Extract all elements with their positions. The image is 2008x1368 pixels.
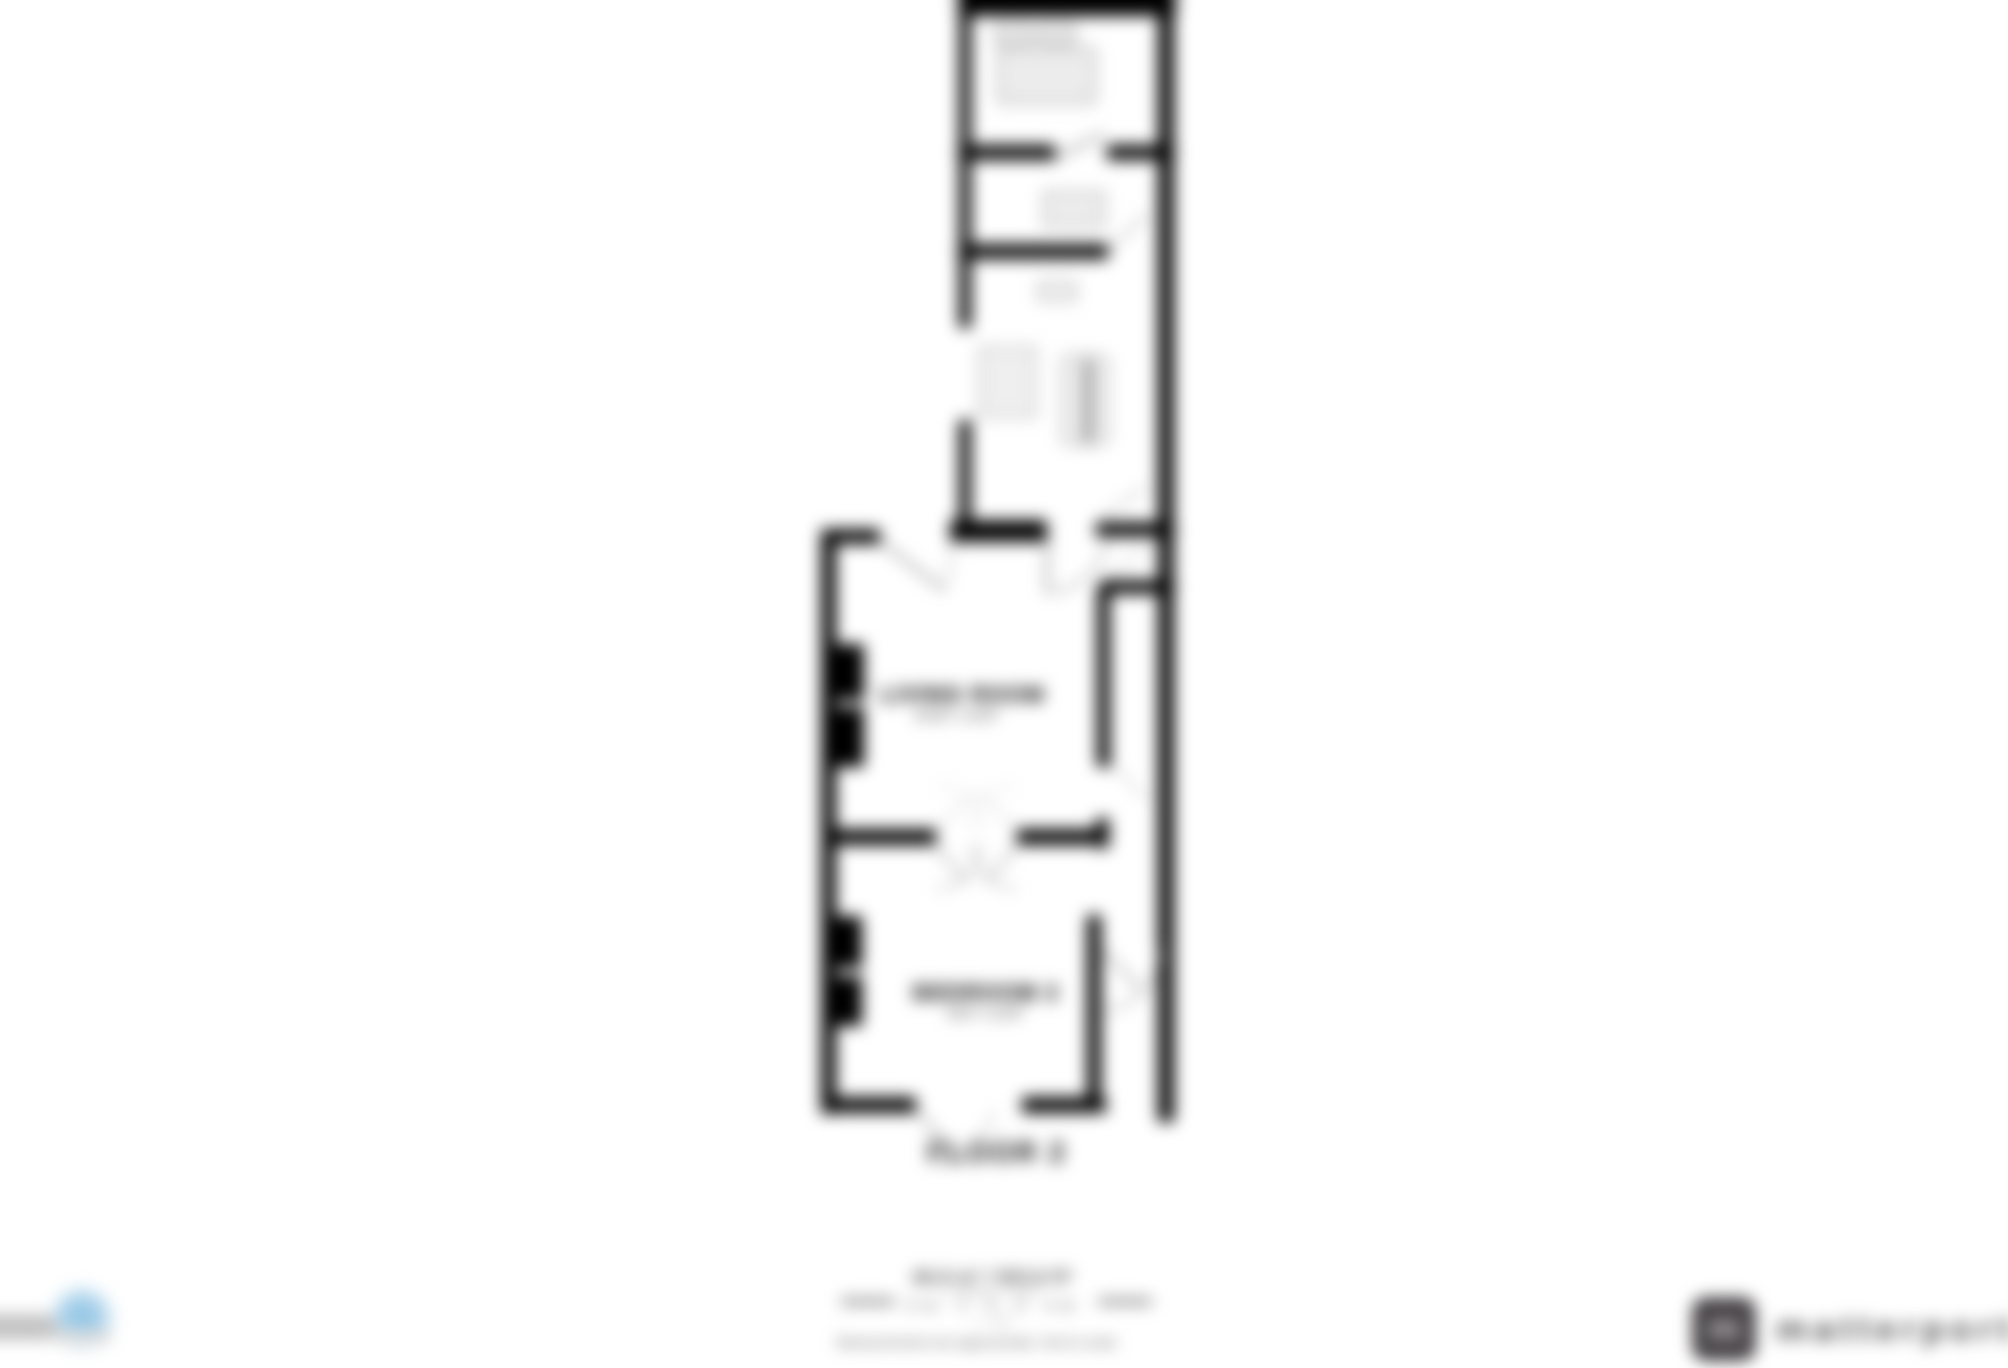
svg-text:14'10" x 11'6": 14'10" x 11'6"	[914, 708, 1000, 723]
svg-text:BEDROOM 2: BEDROOM 2	[913, 980, 1060, 1005]
svg-text:1 : 100: 1 : 100	[974, 1314, 1011, 1328]
svg-text:Measurements are approximate.: Measurements are approximate. Not to sca…	[836, 1334, 1119, 1350]
svg-text:LIVING ROOM: LIVING ROOM	[881, 682, 1045, 707]
svg-text:FLOOR 2: FLOOR 2	[927, 1137, 1067, 1169]
svg-text:13'2" x 11'9": 13'2" x 11'9"	[947, 1006, 1026, 1021]
svg-text:0 m 1 2 3 4 m: 0 m 1 2 3 4 m	[908, 1297, 1077, 1314]
